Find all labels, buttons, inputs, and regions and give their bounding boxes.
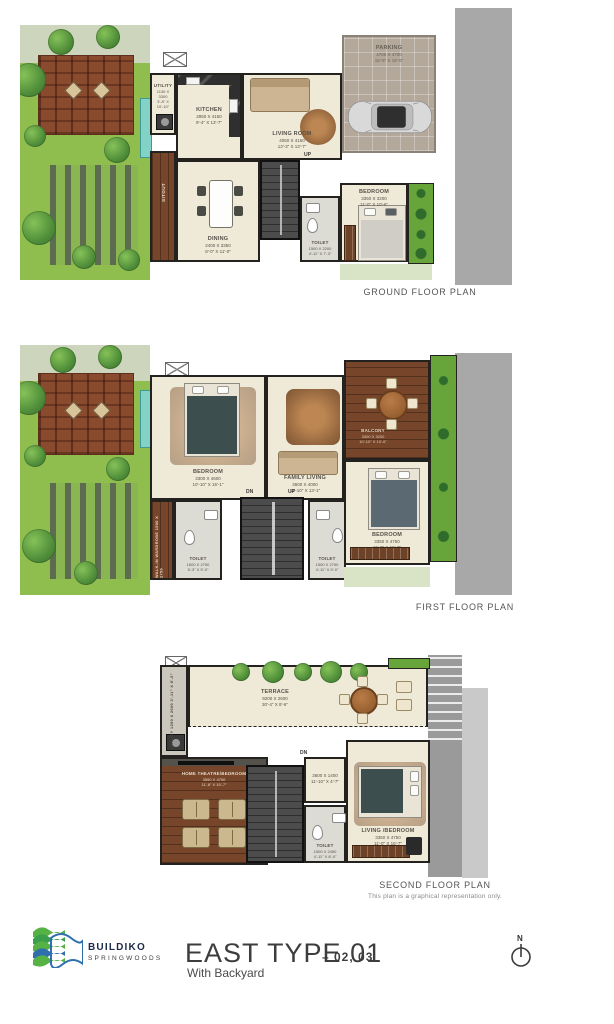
bed-icon — [358, 205, 406, 261]
round-table-icon — [378, 390, 408, 420]
toilet-icon — [312, 825, 323, 840]
room-utility-ground: UTILITY 1130 X 3300 3'-8" X 10'-10" — [150, 73, 176, 135]
tree-icon — [24, 125, 46, 147]
room-label-utility-second: UTILITY 1200 X 2600 3'-11" X 8'-6" — [170, 673, 175, 748]
plant-icon — [232, 663, 250, 681]
garden-ground — [20, 25, 150, 280]
bed-icon — [358, 766, 422, 818]
toilet-icon — [332, 528, 343, 543]
buildiko-logo-icon — [33, 924, 83, 968]
chair-icon — [197, 186, 206, 196]
stairs-first — [240, 497, 304, 580]
plant-icon — [294, 663, 312, 681]
round-table-icon — [350, 687, 378, 715]
chair-icon — [234, 206, 243, 216]
planter-strip — [430, 355, 457, 562]
tree-icon — [74, 561, 98, 585]
room-living-bedroom: LIVING /BEDROOM 3350 X 4750 11'-0" X 15'… — [346, 740, 430, 863]
room-label-family-living: FAMILY LIVING 3600 X 4000 11'-10" X 13'-… — [268, 475, 342, 493]
sink-icon — [316, 510, 330, 520]
neighbor-block-first — [455, 353, 512, 595]
pergola-ladder — [428, 655, 462, 740]
car-icon — [347, 95, 433, 139]
brand-name: BUILDIKO — [88, 942, 146, 953]
garden-first — [20, 345, 150, 595]
room-balcony: BALCONY 3300 X 3200 10'-10" X 10'-6" — [344, 360, 430, 460]
room-parking: PARKING 4700 X 4700 15'-5" X 15'-5" — [342, 35, 436, 153]
room-passage: 3600 X 1400 11'-10" X 4'-7" — [304, 757, 346, 803]
label-up-first: UP — [288, 489, 295, 495]
toilet-icon — [184, 530, 195, 545]
sink-icon — [186, 77, 200, 85]
room-label-passage: 3600 X 1400 11'-10" X 4'-7" — [306, 773, 344, 784]
neighbor-block-second-light — [462, 688, 488, 878]
tree-icon — [98, 345, 122, 369]
sink-icon — [332, 813, 346, 823]
plan-subtitle: With Backyard — [187, 966, 264, 980]
caption-second-floor: SECOND FLOOR PLAN — [360, 880, 510, 890]
room-sitout: SITOUT — [150, 151, 176, 262]
plan-title-units: – 02, 03 — [322, 950, 373, 964]
room-label-dining: DINING 2400 X 3350 8'-0" X 11'-0" — [178, 236, 258, 254]
room-label-wardrobe: WALK-IN WARDROBE 1500 X 2750 — [155, 508, 164, 578]
room-toilet-second: TOILET 1500 X 2450 4'-11" X 8'-0" — [304, 805, 346, 863]
stairs-second — [246, 765, 304, 863]
floor-plan-sheet: UTILITY 1130 X 3300 3'-8" X 10'-10" KITC… — [0, 0, 614, 1024]
room-toilet1-first: TOILET 1600 X 2750 5'-3" X 9'-0" — [174, 500, 222, 580]
tree-icon — [96, 25, 120, 49]
room-label-terrace: TERRACE 9200 X 2600 30'-4" X 8'-6" — [230, 689, 320, 707]
room-label-toilet-ground: TOILET 1500 X 2200 4'-11" X 7'-3" — [302, 240, 338, 256]
tree-icon — [50, 347, 76, 373]
room-toilet-ground: TOILET 1500 X 2200 4'-11" X 7'-3" — [300, 196, 340, 262]
room-walkin-wardrobe: WALK-IN WARDROBE 1500 X 2750 — [150, 500, 174, 580]
bed-icon — [184, 383, 240, 457]
dresser-icon — [406, 837, 422, 855]
wardrobe-icon — [352, 845, 410, 858]
washer-icon — [166, 734, 185, 751]
wardrobe-icon — [350, 547, 410, 560]
label-dn-first: DN — [246, 489, 253, 495]
chair-icon — [234, 186, 243, 196]
sink-icon — [204, 510, 218, 520]
room-living: LIVING ROOM 4050 X 4150 13'-3" X 13'-7" — [242, 73, 342, 160]
tree-icon — [24, 445, 46, 467]
pergola-deck — [38, 55, 134, 135]
room-label-sitout: SITOUT — [161, 183, 166, 202]
tree-icon — [118, 249, 140, 271]
tree-icon — [72, 245, 96, 269]
deck-chair — [64, 81, 82, 99]
tree-icon — [22, 529, 56, 563]
room-label-toilet1: TOILET 1600 X 2750 5'-3" X 9'-0" — [176, 556, 220, 572]
room-bedroom-ground: BEDROOM 3350 X 3200 11'-0" X 10'-6" — [340, 183, 408, 262]
room-label-balcony: BALCONY 3300 X 3200 10'-10" X 10'-6" — [348, 428, 398, 444]
toilet-icon — [307, 218, 318, 233]
recliner-icon — [182, 799, 210, 820]
room-dining: DINING 2400 X 3350 8'-0" X 11'-0" — [176, 160, 260, 262]
stove-icon — [229, 99, 238, 113]
wardrobe-icon — [344, 225, 356, 261]
chair-icon — [197, 206, 206, 216]
room-utility-second: UTILITY 1200 X 2600 3'-11" X 8'-6" — [160, 665, 188, 757]
bed-icon — [368, 468, 420, 530]
room-label-utility: UTILITY 1130 X 3300 3'-8" X 10'-10" — [152, 83, 174, 109]
recliner-icon — [182, 827, 210, 848]
label-up-ground: UP — [304, 152, 311, 158]
stairs-ground — [260, 160, 300, 240]
sink-icon — [306, 203, 320, 213]
deck-chair — [92, 81, 110, 99]
planter-strip — [388, 658, 430, 669]
neighbor-block-ground — [455, 8, 512, 285]
room-toilet2-first: TOILET 1500 X 2750 4'-11" X 9'-0" — [308, 500, 346, 580]
skylight-icon — [163, 52, 187, 67]
north-label: N — [517, 934, 523, 943]
pergola-deck — [38, 373, 134, 455]
room-family-living: FAMILY LIVING 3600 X 4000 11'-10" X 13'-… — [266, 375, 344, 500]
recliner-icon — [218, 799, 246, 820]
disclaimer-text: This plan is a graphical representation … — [345, 893, 525, 900]
room-bedroom1-first: BEDROOM 3300 X 4600 10'-10" X 15'-1" — [150, 375, 266, 500]
caption-ground-floor: GROUND FLOOR PLAN — [330, 287, 510, 297]
tree-icon — [106, 457, 130, 481]
recliner-icon — [218, 827, 246, 848]
caption-first-floor: FIRST FLOOR PLAN — [385, 602, 545, 612]
north-arrow-icon — [508, 943, 534, 969]
room-label-toilet-second: TOILET 1500 X 2450 4'-11" X 8'-0" — [306, 843, 344, 859]
dining-table-icon — [209, 180, 233, 228]
neighbor-block-second — [428, 655, 462, 877]
plant-icon — [320, 661, 342, 683]
rug-icon — [300, 109, 336, 145]
tree-icon — [22, 211, 56, 245]
room-kitchen: KITCHEN 2850 X 4150 9'-4" X 13'-7" — [176, 73, 242, 160]
sofa-icon — [250, 78, 310, 112]
room-label-toilet2: TOILET 1500 X 2750 4'-11" X 9'-0" — [310, 556, 344, 572]
backyard-lawn — [344, 567, 430, 587]
tree-icon — [104, 137, 130, 163]
tree-icon — [48, 29, 74, 55]
room-bedroom2-first: BEDROOM 3350 X 4750 11'-0" X 15'-7" — [344, 460, 430, 565]
brand-subname: SPRINGWOODS — [88, 955, 162, 962]
planter-strip — [408, 183, 434, 264]
backyard-lawn — [340, 264, 432, 280]
sofa-icon — [278, 451, 338, 475]
washer-icon — [156, 114, 173, 130]
tv-icon — [178, 761, 234, 765]
room-label-bedroom1: BEDROOM 3300 X 4600 10'-10" X 15'-1" — [152, 469, 264, 487]
room-terrace: TERRACE 9200 X 2600 30'-4" X 8'-6" — [188, 665, 428, 727]
plant-icon — [262, 661, 284, 683]
room-label-parking: PARKING 4700 X 4700 15'-5" X 15'-5" — [344, 45, 434, 63]
label-dn-second: DN — [300, 750, 307, 756]
